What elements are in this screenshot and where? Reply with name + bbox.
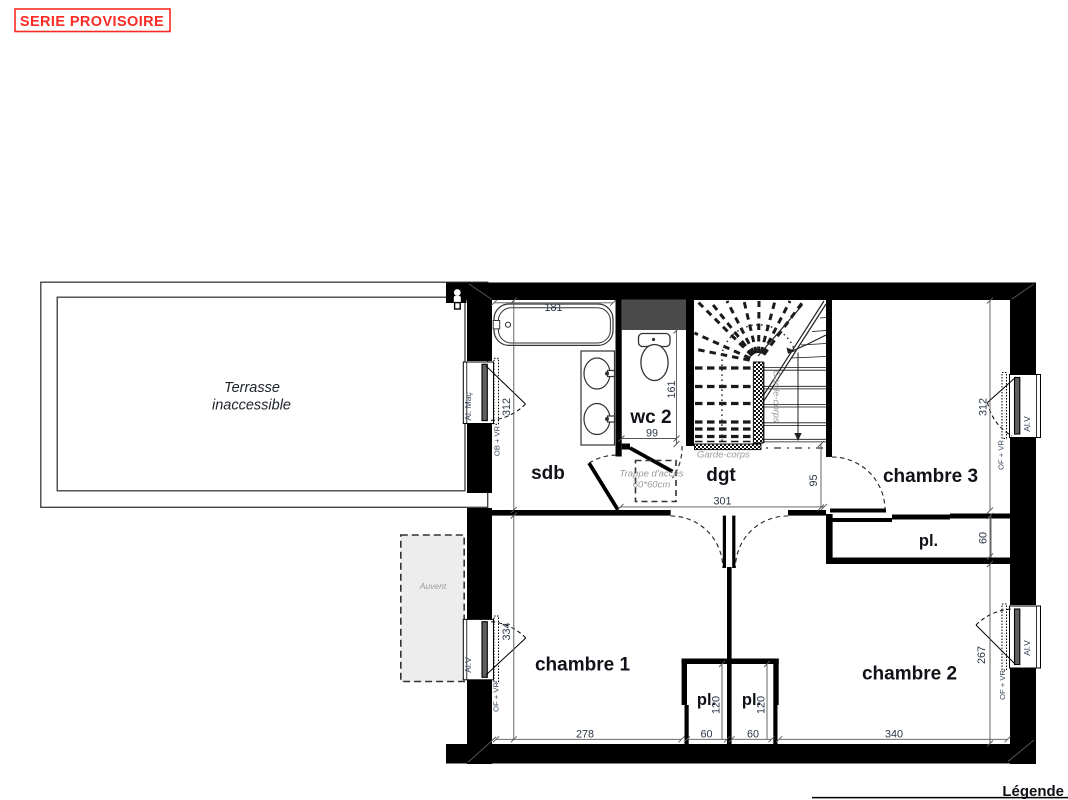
svg-text:Auvent: Auvent xyxy=(419,581,447,591)
svg-text:Terrasse: Terrasse xyxy=(224,380,280,396)
svg-text:60: 60 xyxy=(747,728,759,740)
svg-text:Al.V: Al.V xyxy=(1022,640,1032,656)
svg-text:340: 340 xyxy=(885,728,903,740)
svg-text:Trappe d'accès: Trappe d'accès xyxy=(620,469,684,480)
svg-text:60: 60 xyxy=(700,728,712,740)
svg-text:278: 278 xyxy=(576,728,594,740)
svg-text:OB + VR: OB + VR xyxy=(493,425,502,456)
svg-text:Garde-corps: Garde-corps xyxy=(697,450,750,461)
svg-text:inaccessible: inaccessible xyxy=(212,398,291,414)
svg-text:120: 120 xyxy=(756,696,768,714)
svg-text:dgt: dgt xyxy=(706,465,736,486)
svg-text:Al.V: Al.V xyxy=(463,657,473,673)
svg-text:Al. Maç: Al. Maç xyxy=(463,392,473,421)
svg-text:181: 181 xyxy=(544,302,562,314)
svg-text:60: 60 xyxy=(977,532,989,544)
svg-text:chambre 2: chambre 2 xyxy=(862,664,957,685)
svg-text:pl.: pl. xyxy=(919,532,938,550)
svg-text:60*60cm: 60*60cm xyxy=(633,480,671,491)
svg-text:161: 161 xyxy=(666,380,678,398)
svg-text:334: 334 xyxy=(501,622,513,640)
svg-text:chambre 3: chambre 3 xyxy=(883,466,978,487)
svg-text:OF + VR: OF + VR xyxy=(997,440,1006,470)
svg-text:OF + VR: OF + VR xyxy=(998,670,1007,700)
svg-text:312: 312 xyxy=(501,398,513,416)
svg-text:chambre 1: chambre 1 xyxy=(535,655,630,676)
svg-text:312: 312 xyxy=(977,398,989,416)
svg-text:Al.V: Al.V xyxy=(1022,416,1032,432)
svg-text:95: 95 xyxy=(808,474,820,486)
svg-text:SERIE PROVISOIRE: SERIE PROVISOIRE xyxy=(20,14,164,30)
svg-text:99: 99 xyxy=(646,428,658,440)
svg-text:267: 267 xyxy=(976,646,988,664)
svg-text:301: 301 xyxy=(713,496,731,508)
svg-text:sdb: sdb xyxy=(531,463,565,484)
svg-text:OF + VR: OF + VR xyxy=(492,682,501,712)
svg-text:Garde-corps: Garde-corps xyxy=(771,370,782,423)
svg-text:120: 120 xyxy=(711,696,723,714)
svg-text:wc 2: wc 2 xyxy=(629,407,671,428)
